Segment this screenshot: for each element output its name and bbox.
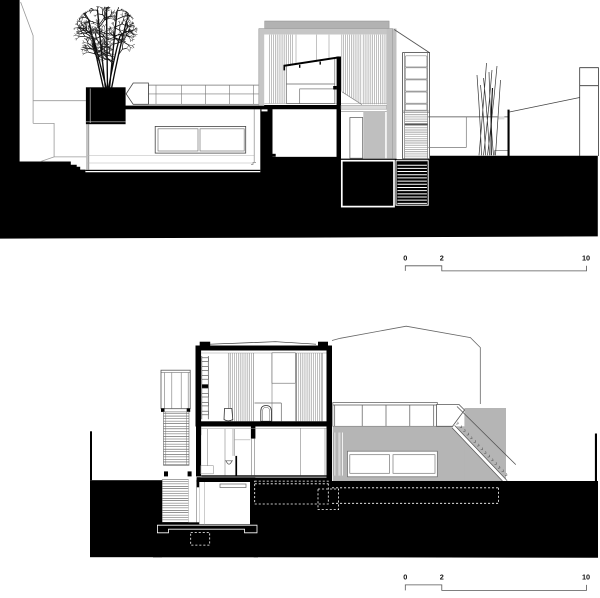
- svg-text:10: 10: [582, 254, 590, 263]
- svg-text:10: 10: [582, 573, 590, 582]
- svg-text:2: 2: [440, 573, 444, 582]
- svg-text:0: 0: [403, 573, 407, 582]
- svg-text:0: 0: [403, 254, 407, 263]
- svg-text:2: 2: [440, 254, 444, 263]
